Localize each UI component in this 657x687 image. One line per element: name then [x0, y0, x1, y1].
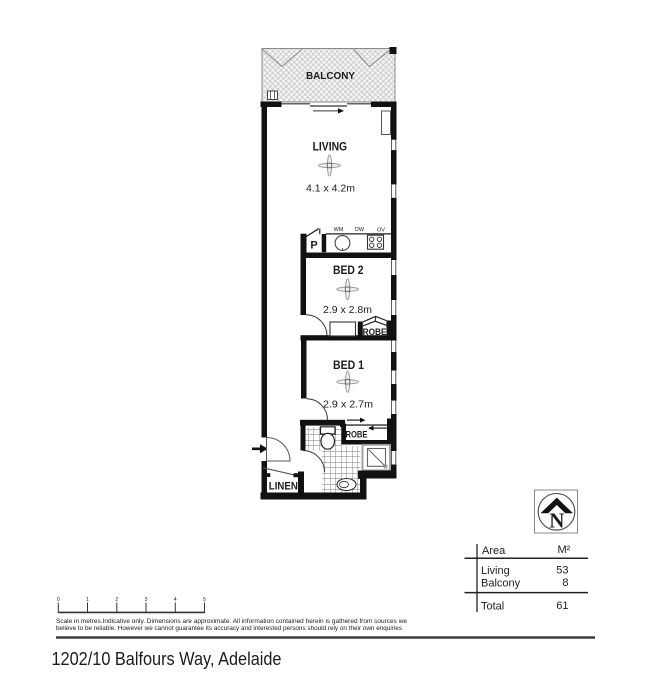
- svg-text:2.9 x 2.8m: 2.9 x 2.8m: [323, 304, 372, 316]
- svg-text:BED 1: BED 1: [333, 360, 365, 372]
- svg-text:2.9 x 2.7m: 2.9 x 2.7m: [323, 399, 373, 411]
- svg-text:5: 5: [203, 597, 206, 603]
- svg-text:believe to be reliable. Howeve: believe to be reliable. However we canno…: [56, 626, 402, 632]
- svg-text:0: 0: [57, 597, 60, 603]
- svg-text:LIVING: LIVING: [313, 142, 348, 154]
- svg-text:P: P: [310, 239, 317, 251]
- svg-text:DW: DW: [355, 227, 365, 233]
- svg-text:1202/10 Balfours Way, Adelaide: 1202/10 Balfours Way, Adelaide: [52, 648, 282, 669]
- svg-text:Total: Total: [481, 601, 504, 613]
- svg-text:1: 1: [86, 597, 89, 603]
- svg-text:M²: M²: [558, 544, 571, 556]
- svg-text:3: 3: [145, 597, 148, 603]
- svg-text:Scale in metres.Indicative onl: Scale in metres.Indicative only. Dimensi…: [56, 619, 408, 625]
- svg-text:ROBE: ROBE: [363, 327, 387, 338]
- svg-text:8: 8: [562, 577, 568, 589]
- svg-text:53: 53: [556, 565, 568, 577]
- svg-text:ROBE: ROBE: [346, 429, 368, 440]
- svg-text:WM: WM: [334, 227, 344, 233]
- svg-text:N: N: [549, 509, 564, 533]
- svg-text:OV: OV: [377, 228, 385, 234]
- svg-text:Living: Living: [481, 565, 510, 577]
- svg-text:BALCONY: BALCONY: [306, 70, 355, 82]
- svg-text:61: 61: [556, 600, 568, 612]
- svg-text:Balcony: Balcony: [481, 578, 521, 590]
- svg-text:LINEN: LINEN: [269, 480, 298, 492]
- svg-text:4: 4: [174, 597, 177, 603]
- svg-text:4.1 x 4.2m: 4.1 x 4.2m: [306, 183, 355, 195]
- svg-text:Area: Area: [482, 545, 506, 557]
- svg-text:2: 2: [115, 597, 118, 603]
- svg-text:BED 2: BED 2: [333, 265, 364, 277]
